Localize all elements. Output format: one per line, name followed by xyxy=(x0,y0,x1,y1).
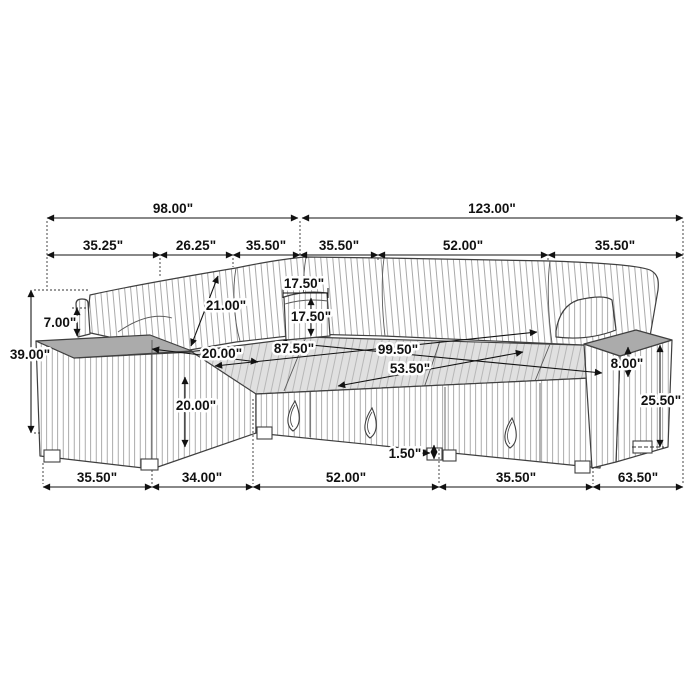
dim-armrest-depth: 20.00" xyxy=(202,346,242,361)
dim-arm-above-seat: 8.00" xyxy=(611,356,644,371)
sofa-illustration xyxy=(36,257,672,473)
dim-overall-height: 39.00" xyxy=(10,347,50,362)
dim-top-seg-5: 52.00" xyxy=(443,238,483,253)
dim-pillow-height: 17.50" xyxy=(291,309,331,324)
dim-top-seg-6: 35.50" xyxy=(595,238,635,253)
dim-pillow-width: 17.50" xyxy=(284,276,324,291)
dim-seat-front-height: 20.00" xyxy=(176,398,216,413)
dim-bottom-seg-1: 35.50" xyxy=(77,470,117,485)
dim-top-seg-4: 35.50" xyxy=(319,238,359,253)
dim-bottom-seg-3: 52.00" xyxy=(326,470,366,485)
dim-leg-height: 1.50" xyxy=(389,446,422,461)
left-back-pillow xyxy=(76,299,90,337)
dim-bottom-seg-4: 35.50" xyxy=(496,470,536,485)
dim-back-above-arm: 7.00" xyxy=(44,315,77,330)
dimension-diagram-page: 98.00" 123.00" 35.25" 26.25" 35.50" 35.5… xyxy=(0,0,700,700)
dim-bed-width-outer: 99.50" xyxy=(378,342,418,357)
dim-arm-height: 25.50" xyxy=(641,393,681,408)
dim-backrest-height: 21.00" xyxy=(206,298,246,313)
dim-bottom-seg-5: 63.50" xyxy=(618,470,658,485)
dim-overall-right: 123.00" xyxy=(468,201,516,216)
dim-bed-depth: 53.50" xyxy=(390,361,430,376)
dim-top-seg-3: 35.50" xyxy=(246,238,286,253)
sofa-dimension-diagram: 98.00" 123.00" 35.25" 26.25" 35.50" 35.5… xyxy=(0,0,700,700)
dim-bed-width-inner: 87.50" xyxy=(274,341,314,356)
dim-overall-left: 98.00" xyxy=(153,201,193,216)
dim-top-seg-1: 35.25" xyxy=(83,238,123,253)
dim-bottom-seg-2: 34.00" xyxy=(182,470,222,485)
dim-top-seg-2: 26.25" xyxy=(176,238,216,253)
